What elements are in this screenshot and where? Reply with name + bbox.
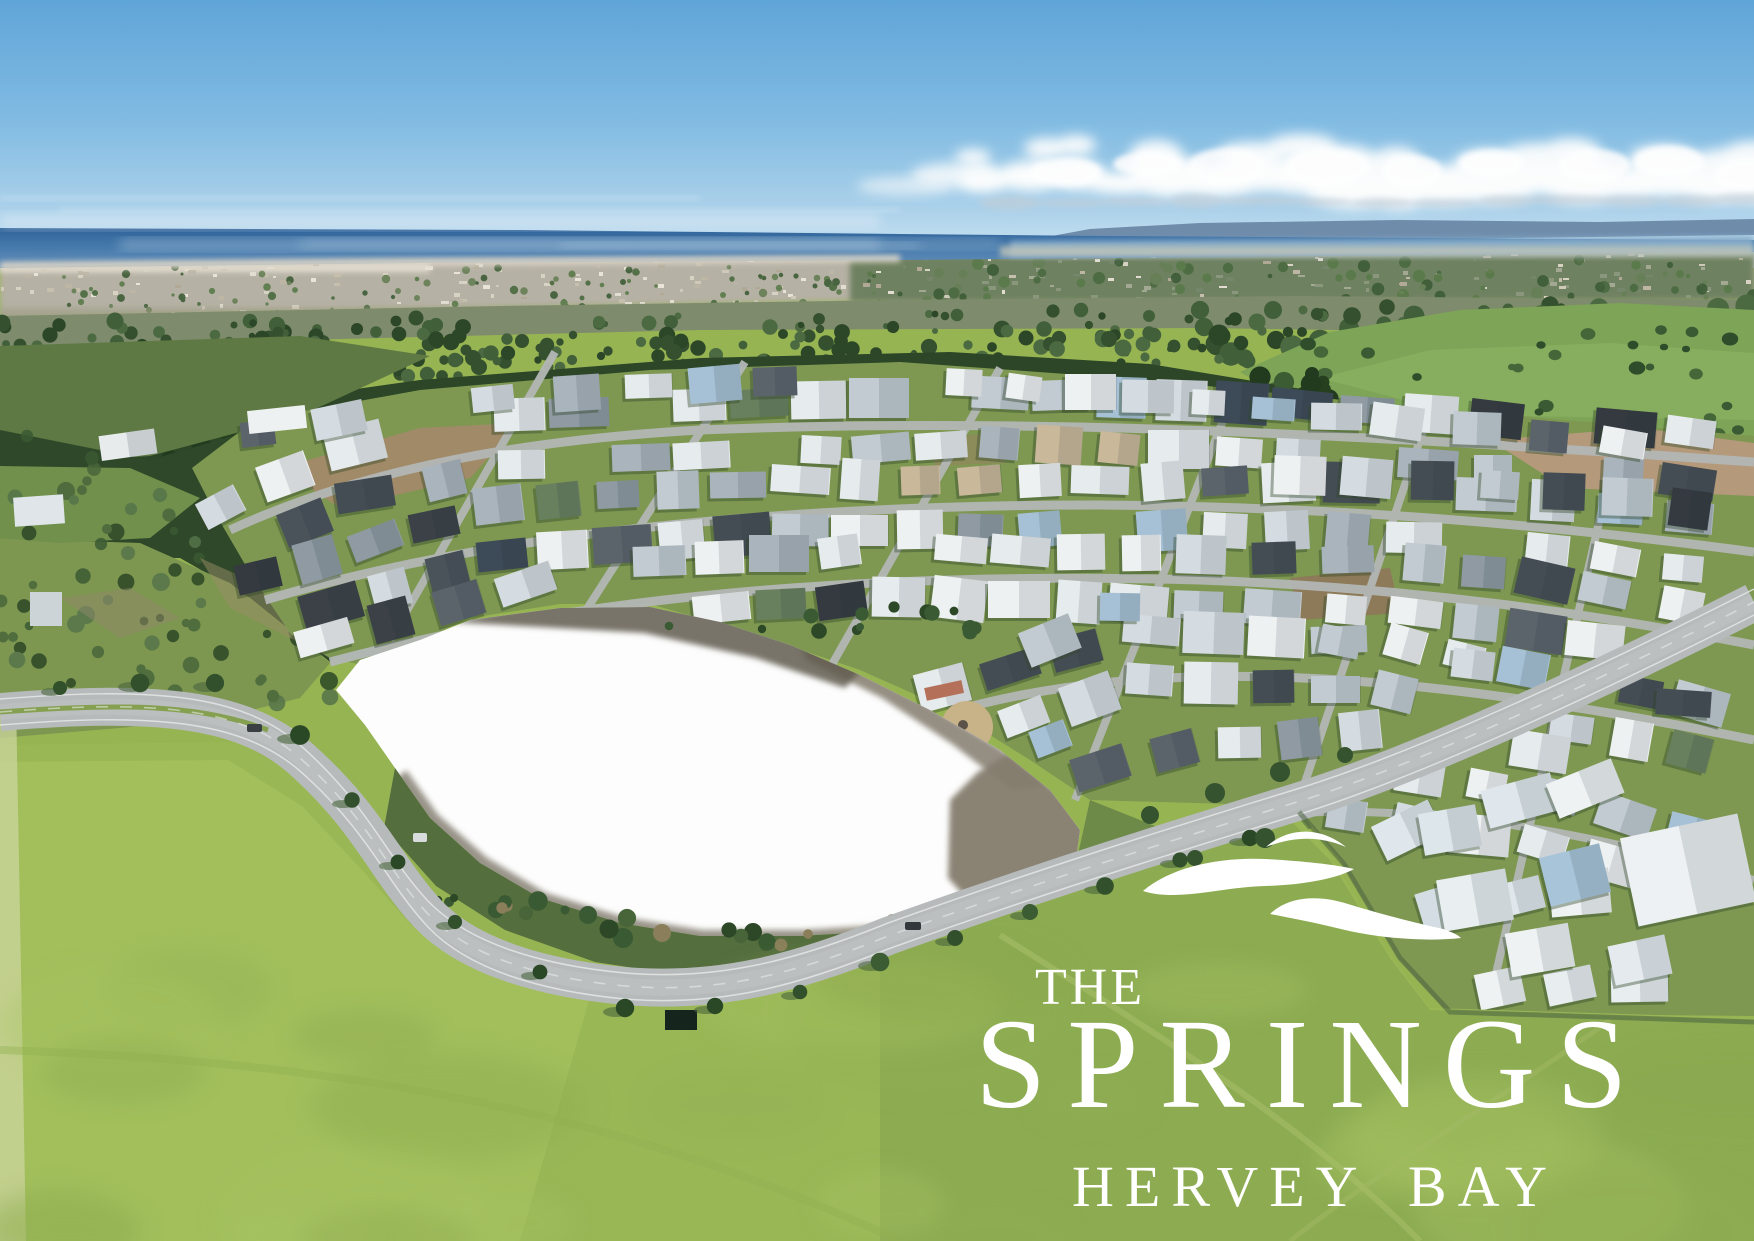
svg-text:HERVEY BAY: HERVEY BAY [1072, 1154, 1558, 1219]
svg-text:SPRINGS: SPRINGS [975, 993, 1648, 1135]
